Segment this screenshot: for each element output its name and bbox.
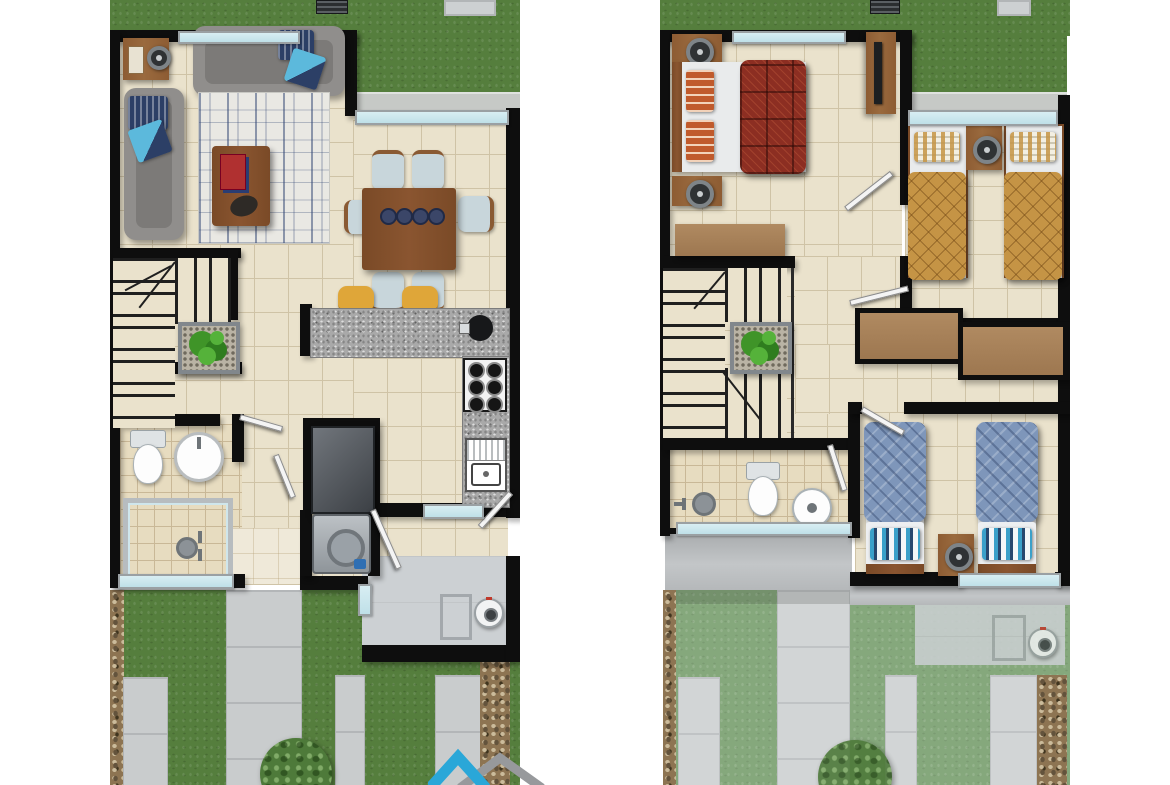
pillow bbox=[870, 528, 920, 560]
stair-winders bbox=[175, 258, 231, 324]
breakfast-bar bbox=[310, 308, 510, 358]
utility-patio bbox=[362, 556, 508, 648]
single-bed bbox=[908, 124, 968, 278]
nightstand bbox=[672, 176, 722, 206]
pillow bbox=[1010, 132, 1056, 162]
paver-strip bbox=[678, 677, 720, 785]
quilt bbox=[1004, 172, 1062, 280]
paver-strip bbox=[123, 677, 168, 785]
wall bbox=[345, 30, 357, 116]
closet bbox=[860, 313, 958, 359]
bedroom3-wall bbox=[904, 402, 1070, 414]
roof-eave bbox=[665, 533, 852, 590]
floorplan-canvas bbox=[0, 0, 1170, 785]
coffee-table bbox=[212, 146, 270, 226]
window bbox=[732, 31, 846, 44]
stove-icon bbox=[463, 358, 507, 412]
table-lamp-icon bbox=[147, 46, 171, 70]
roof-chevron-logo bbox=[428, 746, 588, 785]
stair-winders bbox=[725, 368, 787, 438]
equipment-pad bbox=[440, 594, 472, 640]
washing-machine-icon bbox=[312, 514, 371, 574]
dresser bbox=[675, 224, 785, 256]
tv-console bbox=[866, 32, 896, 114]
window bbox=[355, 110, 509, 125]
window bbox=[676, 522, 852, 536]
back-patio-lawn bbox=[905, 0, 1067, 96]
second-floor-plan bbox=[660, 0, 1070, 785]
roof-vent-icon bbox=[870, 0, 900, 14]
footboard bbox=[866, 564, 924, 574]
closet bbox=[963, 327, 1063, 375]
table-lamp-icon bbox=[686, 180, 714, 208]
stair-planter bbox=[730, 322, 792, 374]
first-floor-plan bbox=[110, 0, 520, 785]
pillow bbox=[686, 120, 714, 162]
window bbox=[958, 573, 1061, 588]
headboard bbox=[672, 62, 682, 172]
faucet-icon bbox=[459, 323, 470, 334]
bedroom3-wall bbox=[848, 402, 862, 414]
gravel-strip bbox=[1037, 675, 1067, 785]
water-heater-icon bbox=[1028, 628, 1058, 658]
quilt bbox=[976, 422, 1038, 522]
double-bed bbox=[672, 62, 806, 172]
plant-icon bbox=[734, 326, 788, 370]
dining-table bbox=[362, 188, 456, 270]
nightstand bbox=[672, 34, 722, 64]
stair-flight bbox=[113, 258, 175, 428]
dining-chair bbox=[458, 196, 494, 232]
table-lamp-icon bbox=[973, 136, 1001, 164]
magazines bbox=[220, 154, 246, 190]
shower-control bbox=[198, 531, 202, 543]
toilet-icon bbox=[130, 430, 164, 488]
bowl-decor bbox=[380, 208, 397, 225]
stair-planter bbox=[178, 322, 240, 374]
equipment-pad bbox=[992, 615, 1026, 661]
toilet-icon bbox=[746, 462, 778, 518]
window bbox=[908, 110, 1058, 126]
stair-wall bbox=[113, 248, 241, 258]
window bbox=[423, 504, 484, 519]
tv-icon bbox=[874, 42, 882, 104]
front-garden-below bbox=[660, 590, 1070, 785]
window bbox=[178, 31, 300, 44]
bowl-decor bbox=[412, 208, 429, 225]
nightstand bbox=[938, 534, 974, 576]
quilt bbox=[908, 172, 966, 280]
bowl-decor bbox=[428, 208, 445, 225]
master-bottom-wall bbox=[660, 256, 795, 268]
pillow bbox=[686, 70, 714, 112]
decor-plate bbox=[228, 192, 261, 220]
concrete-pad bbox=[997, 0, 1031, 16]
shower-head-icon bbox=[176, 537, 198, 559]
stair-flight bbox=[663, 268, 725, 438]
single-bed bbox=[978, 424, 1036, 574]
dining-chair bbox=[412, 150, 444, 190]
window bbox=[118, 574, 234, 589]
bathroom-wall bbox=[232, 414, 244, 462]
stair-bath-wall bbox=[663, 438, 853, 450]
concrete-pad bbox=[444, 0, 496, 16]
shower-control bbox=[198, 549, 202, 561]
laundry-wall bbox=[300, 510, 312, 576]
roof-eave bbox=[850, 585, 1070, 605]
kitchen-sink-icon bbox=[465, 438, 507, 492]
bowl-decor bbox=[396, 208, 413, 225]
single-bed bbox=[1004, 124, 1064, 278]
tray-decor bbox=[128, 46, 144, 74]
roof-vent-icon bbox=[316, 0, 348, 14]
wall bbox=[362, 645, 508, 662]
disposer-icon bbox=[467, 315, 493, 341]
logo-blue-chevron bbox=[430, 757, 486, 785]
quilt bbox=[864, 422, 926, 522]
washbasin-icon bbox=[174, 432, 224, 482]
paver-strip bbox=[990, 675, 1037, 785]
loveseat bbox=[124, 88, 184, 240]
refrigerator-icon bbox=[311, 426, 375, 514]
water-heater-icon bbox=[474, 598, 504, 628]
wall bbox=[506, 556, 520, 662]
nightstand bbox=[966, 126, 1002, 170]
duvet bbox=[740, 60, 806, 174]
plant-icon bbox=[182, 326, 236, 370]
pillow bbox=[982, 528, 1032, 560]
dining-chair bbox=[372, 150, 404, 190]
dining-chair bbox=[372, 272, 404, 312]
table-lamp-icon bbox=[945, 543, 973, 571]
single-bed bbox=[866, 424, 924, 574]
stair-winders bbox=[725, 268, 787, 322]
window bbox=[358, 584, 372, 616]
shower-head-icon bbox=[692, 492, 716, 516]
drain-dot bbox=[807, 503, 817, 513]
side-table bbox=[123, 38, 169, 80]
shower-control bbox=[674, 502, 686, 506]
paver-strip bbox=[335, 675, 365, 785]
shower bbox=[123, 498, 233, 586]
bath-divider-wall bbox=[848, 412, 860, 538]
pillow bbox=[914, 132, 960, 162]
